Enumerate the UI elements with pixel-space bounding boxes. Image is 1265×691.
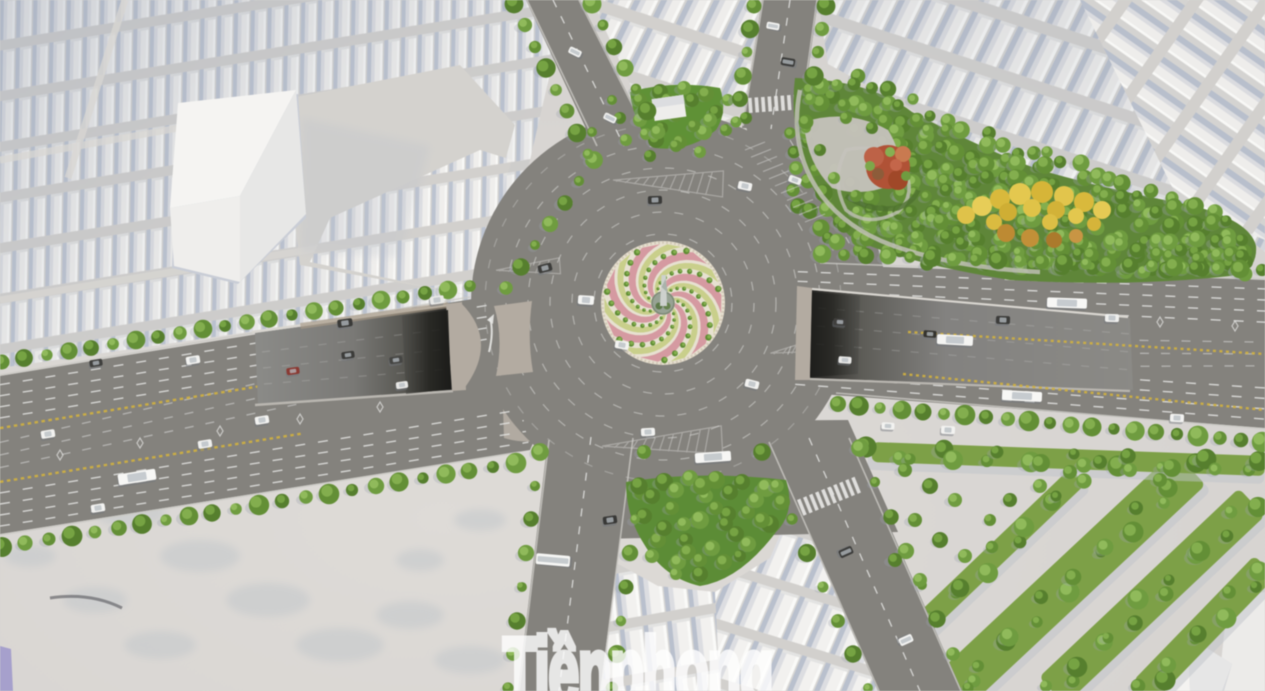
svg-text:Tiềnphong: Tiềnphong (503, 619, 772, 691)
